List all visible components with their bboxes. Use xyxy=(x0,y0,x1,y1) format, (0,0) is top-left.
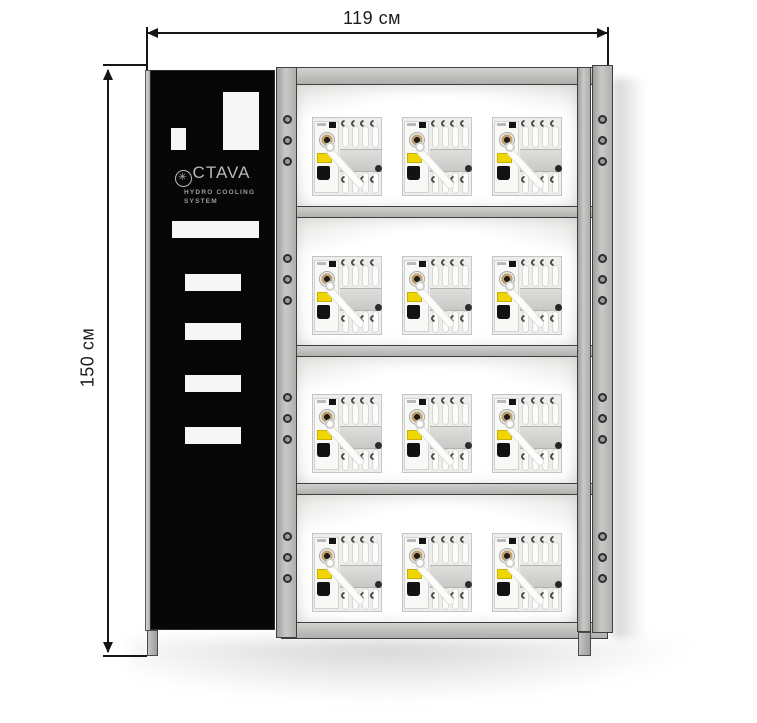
hose-tube xyxy=(522,126,529,148)
unit-top-marking xyxy=(497,262,506,265)
hose-tube xyxy=(532,126,539,148)
rack-rail-right-inner xyxy=(577,67,591,632)
brand-subtitle-line2: SYSTEM xyxy=(184,197,255,206)
hose-clip-icon xyxy=(548,175,558,185)
unit-top-tubes xyxy=(522,265,559,287)
cooling-unit xyxy=(492,256,562,335)
unit-jack-connector xyxy=(329,399,336,405)
unit-valve-knob xyxy=(555,304,562,311)
arrow-right-icon xyxy=(597,28,608,38)
mounting-hole-icon xyxy=(283,574,292,583)
hose-tube xyxy=(542,403,549,425)
cooling-unit xyxy=(402,117,472,196)
cooling-unit xyxy=(312,394,382,473)
unit-jack-connector xyxy=(419,538,426,544)
rack-leg-right xyxy=(578,632,591,656)
rack-leg-left xyxy=(147,630,158,656)
rack-side-shadow xyxy=(613,78,645,638)
unit-valve-knob xyxy=(465,165,472,172)
brand-logo: ✳CTAVA xyxy=(151,163,274,187)
hose-tube xyxy=(462,403,469,425)
unit-top-tubes xyxy=(522,126,559,148)
mounting-hole-icon xyxy=(598,414,607,423)
shelf-section xyxy=(297,85,577,206)
unit-black-port xyxy=(317,305,330,319)
unit-valve-knob xyxy=(375,304,382,311)
unit-hose-joint xyxy=(325,558,335,568)
hose-tube xyxy=(532,265,539,287)
unit-valve-knob xyxy=(465,581,472,588)
hose-tube xyxy=(552,403,559,425)
unit-hose-joint xyxy=(415,558,425,568)
mounting-hole-icon xyxy=(283,275,292,284)
unit-valve-knob xyxy=(465,442,472,449)
unit-hose-joint xyxy=(325,281,335,291)
hose-tube xyxy=(532,403,539,425)
unit-valve-knob xyxy=(465,304,472,311)
unit-top-tubes xyxy=(342,126,379,148)
mounting-hole-icon xyxy=(598,157,607,166)
panel-vent xyxy=(185,323,241,340)
unit-top-marking xyxy=(407,262,416,265)
shelf-divider xyxy=(281,345,608,357)
unit-top-marking xyxy=(497,400,506,403)
unit-valve-knob xyxy=(555,581,562,588)
hose-tube xyxy=(372,265,379,287)
unit-top-tubes xyxy=(432,542,469,564)
unit-top-marking xyxy=(407,400,416,403)
unit-black-port xyxy=(407,443,420,457)
mounting-hole-icon xyxy=(283,553,292,562)
cooling-unit xyxy=(402,256,472,335)
hose-clip-icon xyxy=(368,452,378,462)
hose-clip-icon xyxy=(548,314,558,324)
unit-top-tubes xyxy=(342,403,379,425)
hose-tube xyxy=(552,126,559,148)
hose-clip-icon xyxy=(368,591,378,601)
unit-black-port xyxy=(497,166,510,180)
unit-black-port xyxy=(317,443,330,457)
hose-clip-icon xyxy=(548,452,558,462)
hose-tube xyxy=(522,403,529,425)
unit-top-marking xyxy=(497,539,506,542)
rack-rail-left xyxy=(276,67,297,638)
hose-tube xyxy=(362,542,369,564)
hose-tube xyxy=(362,265,369,287)
cooling-unit xyxy=(312,117,382,196)
hose-tube xyxy=(442,265,449,287)
arrow-left-icon xyxy=(147,28,158,38)
shelf-section xyxy=(297,218,577,345)
unit-valve-knob xyxy=(555,442,562,449)
unit-top-tubes xyxy=(342,265,379,287)
panel-vent xyxy=(185,274,241,291)
shelf-section xyxy=(297,495,577,622)
rack-post-right xyxy=(592,65,613,633)
unit-black-port xyxy=(497,443,510,457)
hose-tube xyxy=(432,542,439,564)
mounting-hole-icon xyxy=(598,275,607,284)
panel-cutout-large xyxy=(223,92,259,150)
hose-tube xyxy=(372,126,379,148)
hose-clip-icon xyxy=(458,314,468,324)
hose-tube xyxy=(432,265,439,287)
hose-tube xyxy=(352,126,359,148)
hose-tube xyxy=(352,542,359,564)
cooling-unit xyxy=(312,256,382,335)
unit-black-port xyxy=(497,582,510,596)
panel-vent xyxy=(185,375,241,392)
unit-top-marking xyxy=(407,123,416,126)
mounting-hole-icon xyxy=(283,435,292,444)
mounting-hole-icon xyxy=(283,414,292,423)
hose-tube xyxy=(452,542,459,564)
unit-hose-joint xyxy=(505,419,515,429)
mounting-hole-icon xyxy=(283,393,292,402)
unit-black-port xyxy=(317,166,330,180)
hose-tube xyxy=(552,542,559,564)
unit-top-marking xyxy=(497,123,506,126)
unit-valve-knob xyxy=(375,442,382,449)
unit-top-marking xyxy=(317,123,326,126)
hose-tube xyxy=(352,265,359,287)
unit-top-tubes xyxy=(432,126,469,148)
unit-jack-connector xyxy=(329,538,336,544)
cooling-unit xyxy=(402,533,472,612)
mounting-hole-icon xyxy=(598,553,607,562)
mounting-hole-icon xyxy=(283,157,292,166)
unit-valve-knob xyxy=(375,581,382,588)
brand-subtitle: HYDRO COOLING SYSTEM xyxy=(184,188,255,206)
hose-clip-icon xyxy=(458,175,468,185)
unit-hose-joint xyxy=(505,558,515,568)
unit-top-tubes xyxy=(342,542,379,564)
unit-top-tubes xyxy=(522,542,559,564)
height-dimension-label: 150 см xyxy=(78,308,99,408)
width-dimension-line xyxy=(148,32,607,34)
hose-tube xyxy=(342,126,349,148)
hose-tube xyxy=(522,542,529,564)
hose-tube xyxy=(462,542,469,564)
equipment-dimension-diagram: 119 см 150 см ✳CTAVA HYDRO COOLING SYSTE… xyxy=(0,0,757,723)
panel-vent xyxy=(185,427,241,444)
mounting-hole-icon xyxy=(283,532,292,541)
rack-floor-shadow xyxy=(130,640,690,700)
unit-jack-connector xyxy=(419,261,426,267)
hose-tube xyxy=(362,126,369,148)
unit-hose-joint xyxy=(415,419,425,429)
unit-black-port xyxy=(407,305,420,319)
dimension-extension-line xyxy=(103,655,147,657)
unit-valve-knob xyxy=(555,165,562,172)
mounting-hole-icon xyxy=(598,574,607,583)
dimension-extension-line xyxy=(103,64,147,66)
hose-tube xyxy=(552,265,559,287)
hose-tube xyxy=(372,542,379,564)
rack-bottom-bar xyxy=(281,622,608,639)
arrow-up-icon xyxy=(103,69,113,80)
unit-black-port xyxy=(407,166,420,180)
unit-jack-connector xyxy=(329,122,336,128)
hose-tube xyxy=(352,403,359,425)
unit-top-marking xyxy=(317,400,326,403)
unit-jack-connector xyxy=(509,399,516,405)
unit-top-tubes xyxy=(432,265,469,287)
unit-jack-connector xyxy=(509,122,516,128)
mounting-hole-icon xyxy=(283,296,292,305)
cooling-unit xyxy=(312,533,382,612)
panel-cutout-small xyxy=(171,128,186,150)
unit-hose-joint xyxy=(505,281,515,291)
cooling-unit xyxy=(402,394,472,473)
unit-top-marking xyxy=(317,262,326,265)
octava-fan-logo-icon: ✳ xyxy=(175,170,192,187)
cooling-unit xyxy=(492,394,562,473)
unit-valve-knob xyxy=(375,165,382,172)
brand-logo-text: CTAVA xyxy=(193,163,251,182)
hose-tube xyxy=(442,542,449,564)
unit-jack-connector xyxy=(509,538,516,544)
hose-tube xyxy=(542,265,549,287)
hose-clip-icon xyxy=(548,591,558,601)
hose-tube xyxy=(532,542,539,564)
shelf-divider xyxy=(281,483,608,495)
hose-tube xyxy=(462,265,469,287)
unit-top-marking xyxy=(407,539,416,542)
arrow-down-icon xyxy=(103,642,113,653)
mounting-hole-icon xyxy=(598,254,607,263)
hose-tube xyxy=(362,403,369,425)
hose-tube xyxy=(342,542,349,564)
hose-tube xyxy=(372,403,379,425)
unit-hose-joint xyxy=(415,281,425,291)
unit-black-port xyxy=(407,582,420,596)
hose-tube xyxy=(442,126,449,148)
hose-tube xyxy=(522,265,529,287)
hose-clip-icon xyxy=(368,314,378,324)
unit-jack-connector xyxy=(329,261,336,267)
hose-tube xyxy=(462,126,469,148)
hose-clip-icon xyxy=(368,175,378,185)
unit-jack-connector xyxy=(509,261,516,267)
mounting-hole-icon xyxy=(283,254,292,263)
shelf-section xyxy=(297,357,577,483)
unit-hose-joint xyxy=(325,419,335,429)
hose-tube xyxy=(542,126,549,148)
unit-top-marking xyxy=(317,539,326,542)
hose-tube xyxy=(452,126,459,148)
cooling-unit xyxy=(492,533,562,612)
unit-black-port xyxy=(497,305,510,319)
hose-tube xyxy=(452,403,459,425)
mounting-hole-icon xyxy=(598,115,607,124)
hose-tube xyxy=(432,126,439,148)
mounting-hole-icon xyxy=(283,115,292,124)
unit-hose-joint xyxy=(415,142,425,152)
height-dimension-line xyxy=(107,70,109,652)
hose-tube xyxy=(342,403,349,425)
mounting-hole-icon xyxy=(598,532,607,541)
unit-top-tubes xyxy=(522,403,559,425)
unit-jack-connector xyxy=(419,399,426,405)
unit-top-tubes xyxy=(432,403,469,425)
hose-clip-icon xyxy=(458,452,468,462)
unit-hose-joint xyxy=(505,142,515,152)
hose-tube xyxy=(432,403,439,425)
hose-clip-icon xyxy=(458,591,468,601)
width-dimension-label: 119 см xyxy=(312,8,432,29)
mounting-hole-icon xyxy=(283,136,292,145)
mounting-hole-icon xyxy=(598,136,607,145)
unit-black-port xyxy=(317,582,330,596)
mounting-hole-icon xyxy=(598,435,607,444)
hose-tube xyxy=(342,265,349,287)
panel-vent-wide xyxy=(172,221,259,238)
hose-tube xyxy=(542,542,549,564)
rack-top-bar xyxy=(276,67,613,85)
unit-hose-joint xyxy=(325,142,335,152)
shelf-divider xyxy=(281,206,608,218)
hose-tube xyxy=(452,265,459,287)
control-panel: ✳CTAVA HYDRO COOLING SYSTEM xyxy=(150,70,275,630)
brand-subtitle-line1: HYDRO COOLING xyxy=(184,188,255,197)
mounting-hole-icon xyxy=(598,393,607,402)
unit-jack-connector xyxy=(419,122,426,128)
mounting-hole-icon xyxy=(598,296,607,305)
cooling-unit xyxy=(492,117,562,196)
hose-tube xyxy=(442,403,449,425)
